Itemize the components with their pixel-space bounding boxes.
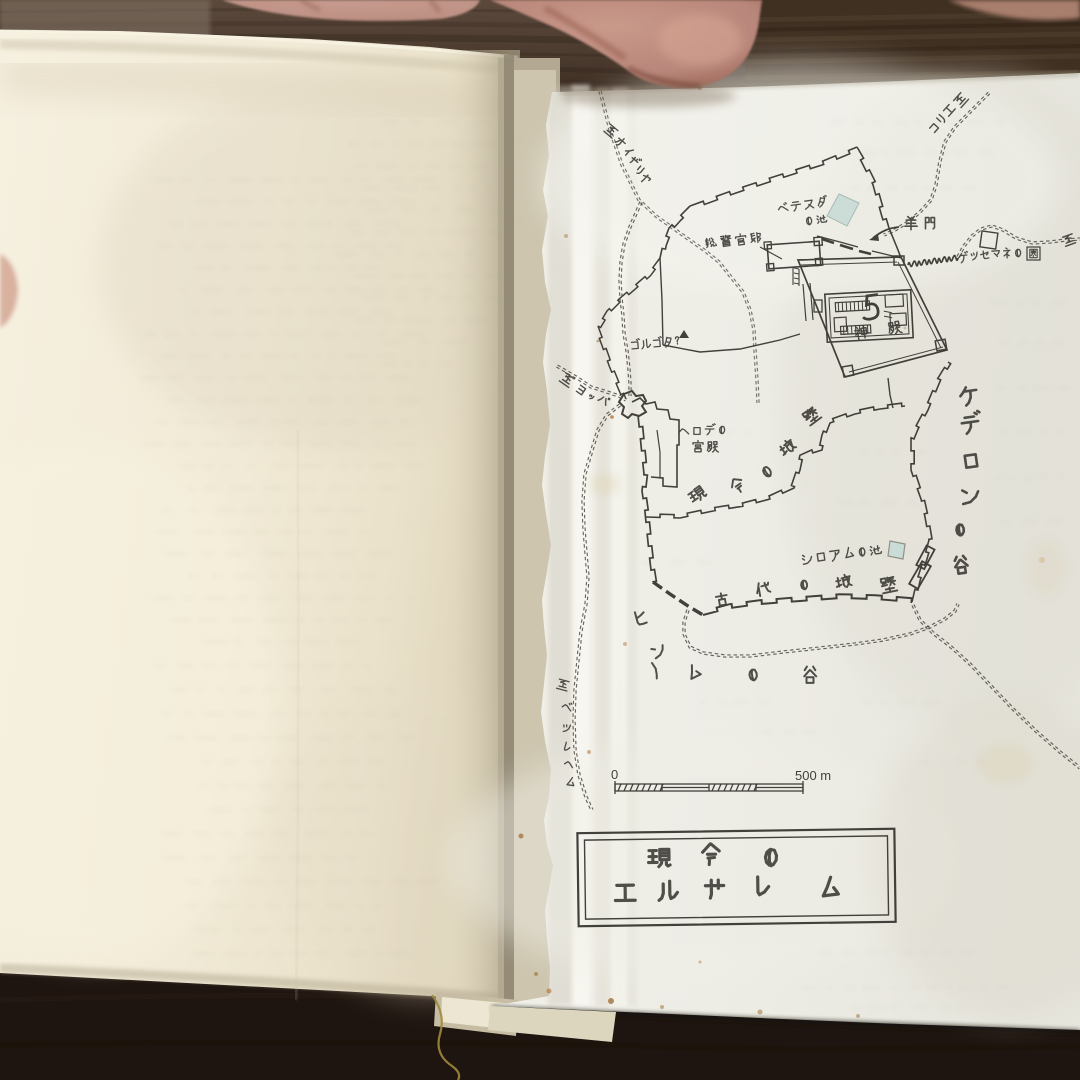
- svg-text:0: 0: [611, 767, 618, 782]
- svg-text:500 m: 500 m: [795, 768, 831, 783]
